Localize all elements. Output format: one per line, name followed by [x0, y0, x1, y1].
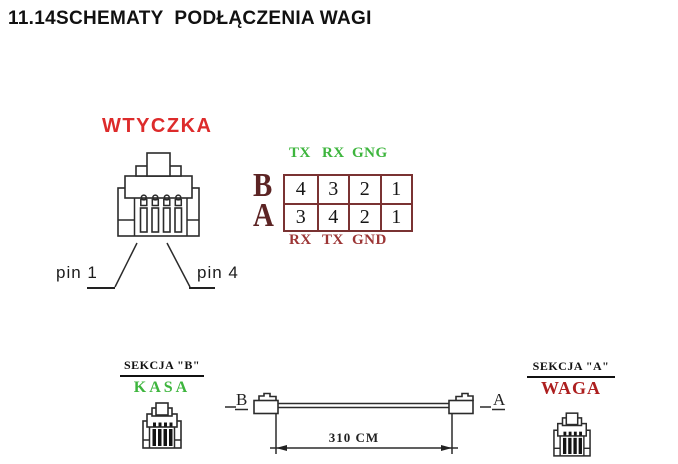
table-cell: 4 [285, 176, 317, 203]
bottom-header-tx: TX [322, 232, 344, 249]
table-cell: 4 [317, 203, 349, 230]
section-a-title: SEKCJA "A" [527, 359, 615, 378]
section-a-name: WAGA [527, 378, 615, 399]
cable-right-label: A [493, 390, 506, 409]
table-cell: 3 [317, 176, 349, 203]
rj-plug-small-icon-left [142, 402, 182, 450]
schematic-page: 11.14SCHEMATY PODŁĄCZENIA WAGI WTYCZKA p… [0, 0, 678, 464]
cable-left-label: B [236, 390, 247, 409]
section-b-title: SEKCJA "B" [120, 358, 204, 377]
dimension-arrow-left [276, 445, 287, 451]
table-cell: 2 [348, 176, 380, 203]
row-label-a: A [253, 199, 274, 233]
pin4-label: pin 4 [197, 263, 239, 283]
table-cell: 2 [348, 203, 380, 230]
pin-pointer-lines [95, 241, 205, 291]
top-header-tx: TX [289, 145, 311, 162]
bottom-header-gnd: GND [352, 232, 387, 249]
section-b-name: KASA [120, 379, 204, 397]
top-header-rx: RX [322, 145, 345, 162]
pin1-label: pin 1 [56, 263, 98, 283]
rj-plug-small-icon-right [553, 412, 591, 458]
page-title: 11.14SCHEMATY PODŁĄCZENIA WAGI [8, 8, 372, 30]
pin-table: 4 3 2 1 3 4 2 1 [283, 174, 413, 232]
cable-diagram: B A 310 CM [222, 383, 510, 458]
table-cell: 3 [285, 203, 317, 230]
cable-length-label: 310 CM [329, 430, 379, 445]
bottom-header-rx: RX [289, 232, 312, 249]
table-cell: 1 [380, 203, 412, 230]
top-header-gng: GNG [352, 145, 388, 162]
plug-label: WTYCZKA [102, 115, 212, 138]
pin4-underline [189, 287, 215, 289]
dimension-arrow-right [441, 445, 452, 451]
rj-plug-front-icon [116, 149, 202, 243]
pin1-underline [87, 287, 115, 289]
table-cell: 1 [380, 176, 412, 203]
